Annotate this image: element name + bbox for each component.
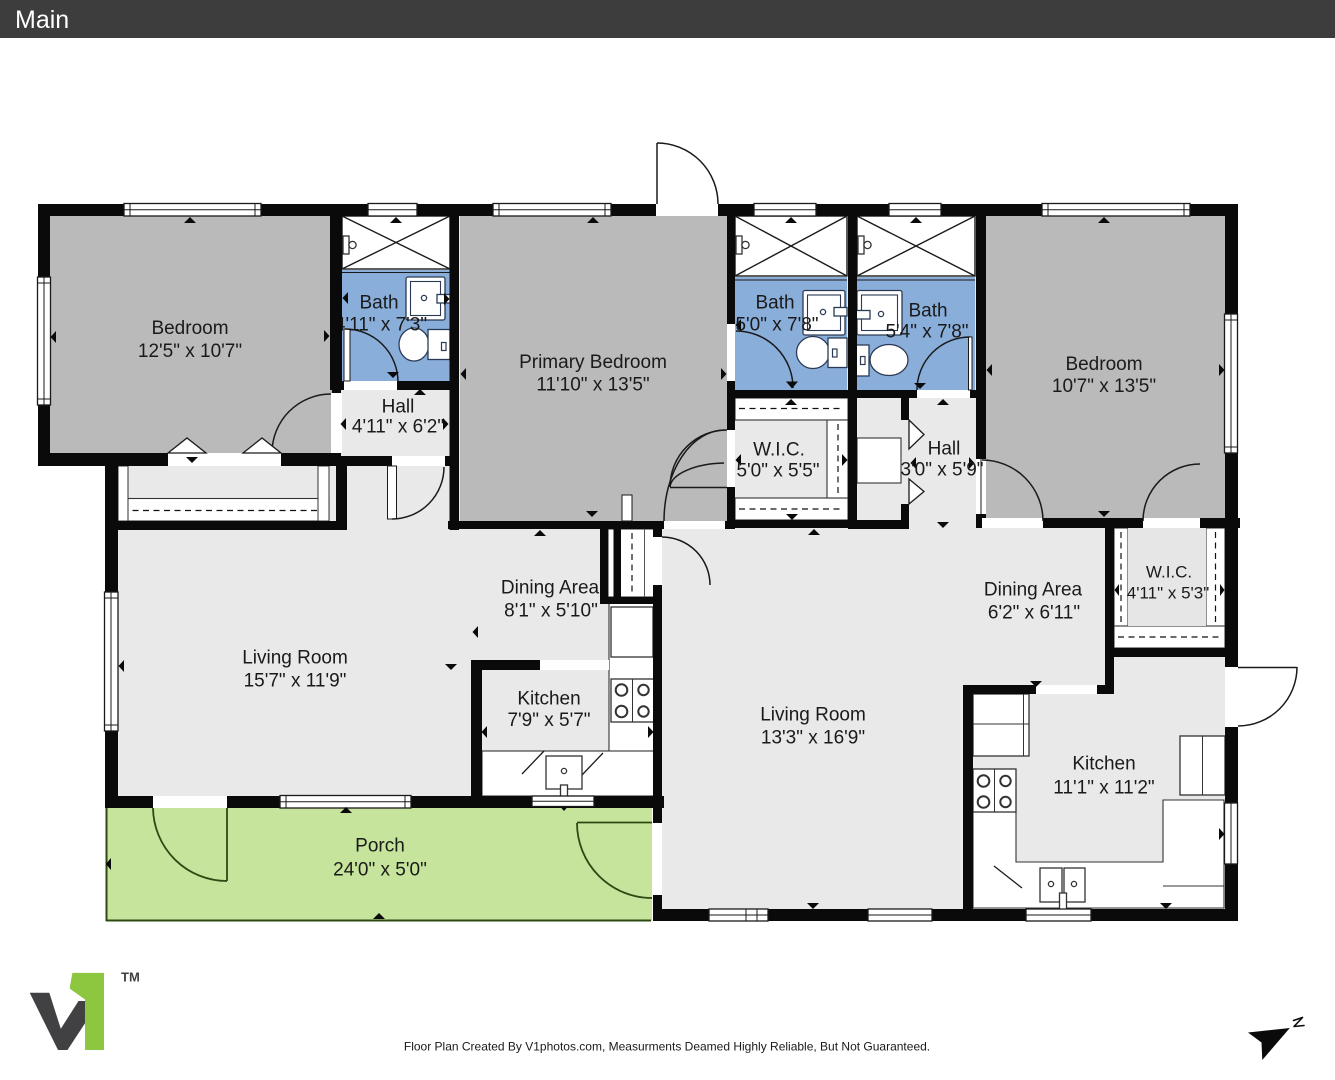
svg-text:Hall: Hall: [382, 397, 415, 418]
svg-text:Bedroom: Bedroom: [151, 318, 228, 339]
svg-text:Floor Plan Created By V1photos: Floor Plan Created By V1photos.com, Meas…: [404, 1040, 930, 1054]
svg-text:Bedroom: Bedroom: [1065, 354, 1142, 375]
svg-text:10'7" x 13'5": 10'7" x 13'5": [1052, 376, 1156, 397]
svg-text:Kitchen: Kitchen: [1072, 754, 1135, 775]
svg-text:5'0" x 5'5": 5'0" x 5'5": [736, 461, 819, 482]
svg-text:Main: Main: [15, 6, 69, 34]
svg-text:7'9" x 5'7": 7'9" x 5'7": [507, 710, 590, 731]
svg-text:4'11" x 5'3": 4'11" x 5'3": [1127, 584, 1210, 603]
svg-text:W.I.C.: W.I.C.: [1146, 563, 1192, 582]
svg-text:5'0" x 7'8": 5'0" x 7'8": [735, 315, 818, 336]
svg-text:Dining Area: Dining Area: [984, 580, 1083, 601]
svg-text:3'0" x 5'9": 3'0" x 5'9": [900, 460, 983, 481]
svg-text:11'10" x 13'5": 11'10" x 13'5": [536, 375, 649, 396]
svg-text:Living Room: Living Room: [242, 648, 348, 669]
svg-text:6'2" x 6'11": 6'2" x 6'11": [988, 603, 1080, 624]
svg-text:Living Room: Living Room: [760, 705, 866, 726]
svg-text:5'4" x 7'8": 5'4" x 7'8": [885, 322, 968, 343]
svg-text:13'3" x 16'9": 13'3" x 16'9": [761, 728, 865, 749]
svg-text:Kitchen: Kitchen: [517, 689, 580, 710]
svg-text:Bath: Bath: [359, 293, 398, 314]
svg-text:Bath: Bath: [908, 301, 947, 322]
svg-text:Hall: Hall: [928, 439, 961, 460]
svg-text:Dining Area: Dining Area: [501, 578, 600, 599]
svg-text:24'0" x 5'0": 24'0" x 5'0": [333, 860, 427, 881]
svg-text:Porch: Porch: [355, 836, 405, 857]
svg-text:8'1" x 5'10": 8'1" x 5'10": [504, 601, 598, 622]
svg-text:Bath: Bath: [755, 293, 794, 314]
svg-text:W.I.C.: W.I.C.: [753, 440, 805, 461]
svg-text:12'5" x 10'7": 12'5" x 10'7": [138, 341, 242, 362]
svg-text:11'1" x 11'2": 11'1" x 11'2": [1053, 778, 1154, 799]
svg-text:TM: TM: [121, 970, 140, 985]
svg-text:4'11" x 6'2": 4'11" x 6'2": [352, 417, 444, 438]
svg-text:4'11" x 7'3": 4'11" x 7'3": [335, 315, 427, 336]
svg-text:Primary Bedroom: Primary Bedroom: [519, 352, 667, 373]
svg-text:15'7" x 11'9": 15'7" x 11'9": [244, 671, 347, 692]
